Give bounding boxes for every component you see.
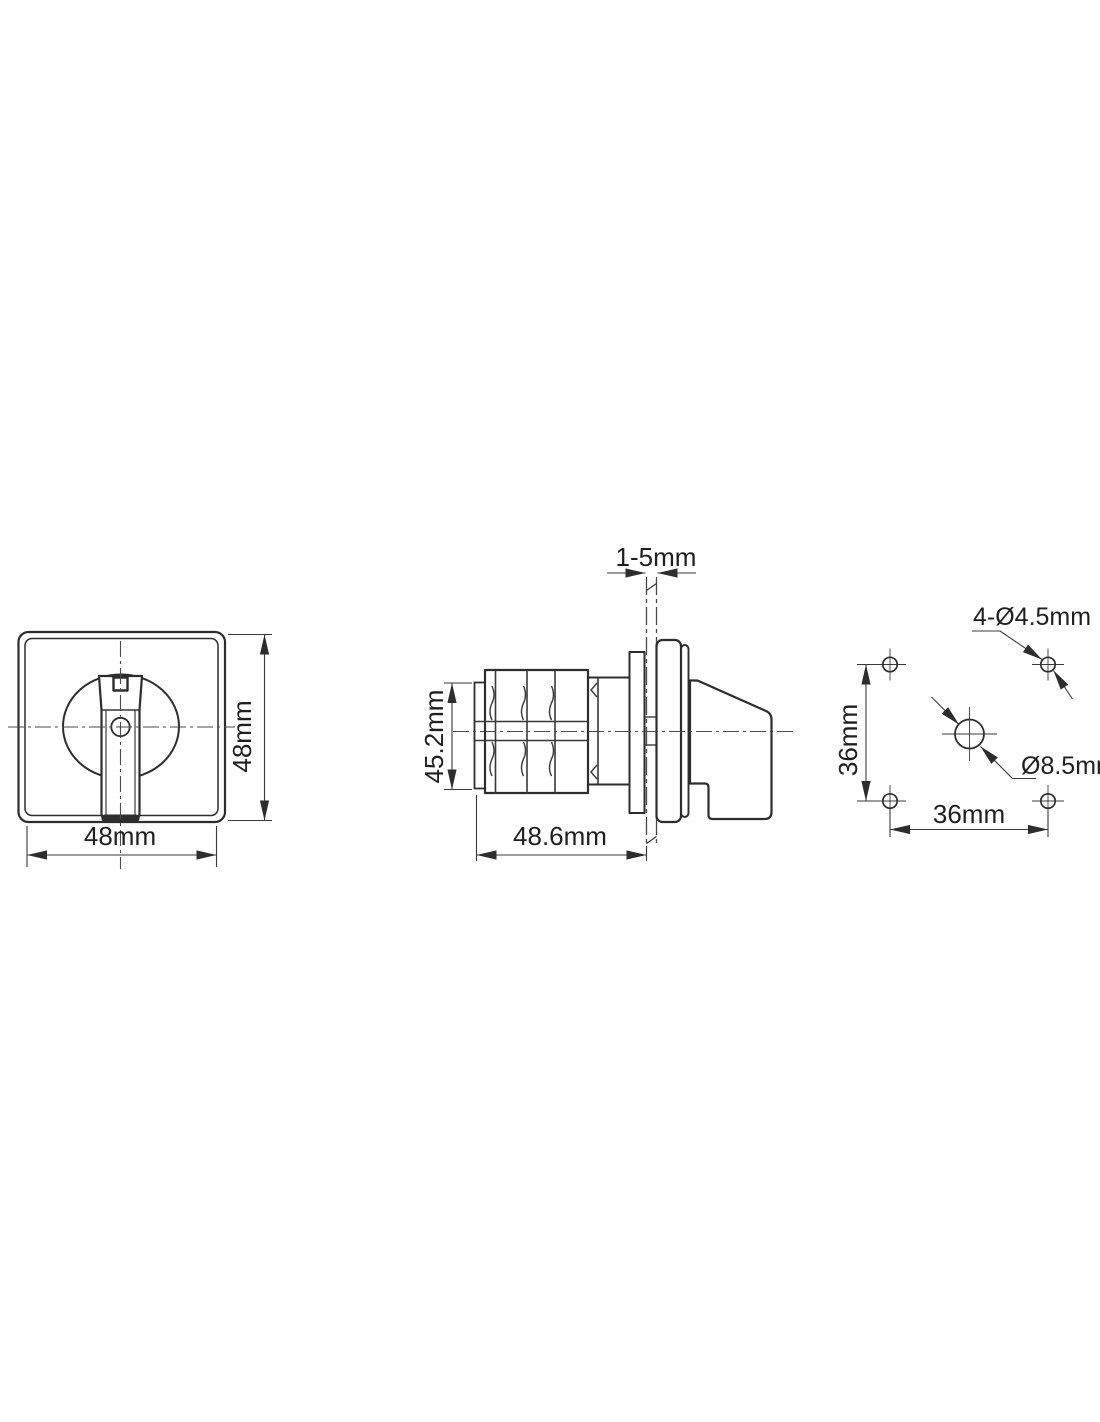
drawing-canvas: 48mm 48mm bbox=[0, 0, 1100, 1422]
cam-switch-technical-drawing: 48mm 48mm bbox=[0, 0, 1100, 1422]
center-hole-label: Ø8.5mm bbox=[1021, 752, 1100, 780]
front-width-dimension: 48mm bbox=[27, 821, 217, 867]
center-hole-callout: Ø8.5mm bbox=[932, 697, 1100, 780]
knob-side-profile bbox=[690, 681, 772, 820]
dim-stack-height-label: 45.2mm bbox=[419, 690, 449, 784]
dim-hole-spacing-horizontal-label: 36mm bbox=[933, 799, 1005, 829]
body-depth-dimension: 48.6mm bbox=[477, 795, 647, 861]
front-view: 48mm 48mm bbox=[8, 632, 272, 869]
dim-front-width-label: 48mm bbox=[84, 821, 156, 851]
rear-mounting-plate bbox=[630, 652, 645, 813]
dim-hole-spacing-vertical-label: 36mm bbox=[833, 704, 863, 776]
corner-holes-callout: 4-Ø4.5mm bbox=[972, 603, 1091, 699]
panel-break-bottom bbox=[647, 837, 657, 844]
detent-mark-top bbox=[591, 683, 597, 697]
dim-front-height-label: 48mm bbox=[227, 700, 257, 772]
panel-thickness-dimension: 1-5mm bbox=[607, 542, 696, 573]
corner-holes-label: 4-Ø4.5mm bbox=[973, 603, 1091, 631]
mounting-hole-plan: 36mm 36mm 4-Ø4.5mm Ø8.5mm bbox=[833, 603, 1100, 837]
corner-hole-top-right bbox=[1032, 649, 1064, 681]
hole-spacing-horizontal-dimension: 36mm bbox=[890, 799, 1048, 837]
hole-spacing-vertical-dimension: 36mm bbox=[833, 665, 883, 802]
dim-panel-thickness-label: 1-5mm bbox=[616, 542, 697, 572]
front-height-dimension: 48mm bbox=[227, 635, 272, 821]
panel-break-top bbox=[647, 584, 657, 591]
detent-mark-bottom bbox=[591, 765, 597, 779]
stack-height-dimension: 45.2mm bbox=[419, 683, 472, 790]
rear-end-cap bbox=[475, 683, 486, 789]
dim-body-depth-label: 48.6mm bbox=[513, 821, 607, 851]
side-view: 45.2mm 48.6mm 1-5mm bbox=[419, 542, 797, 861]
